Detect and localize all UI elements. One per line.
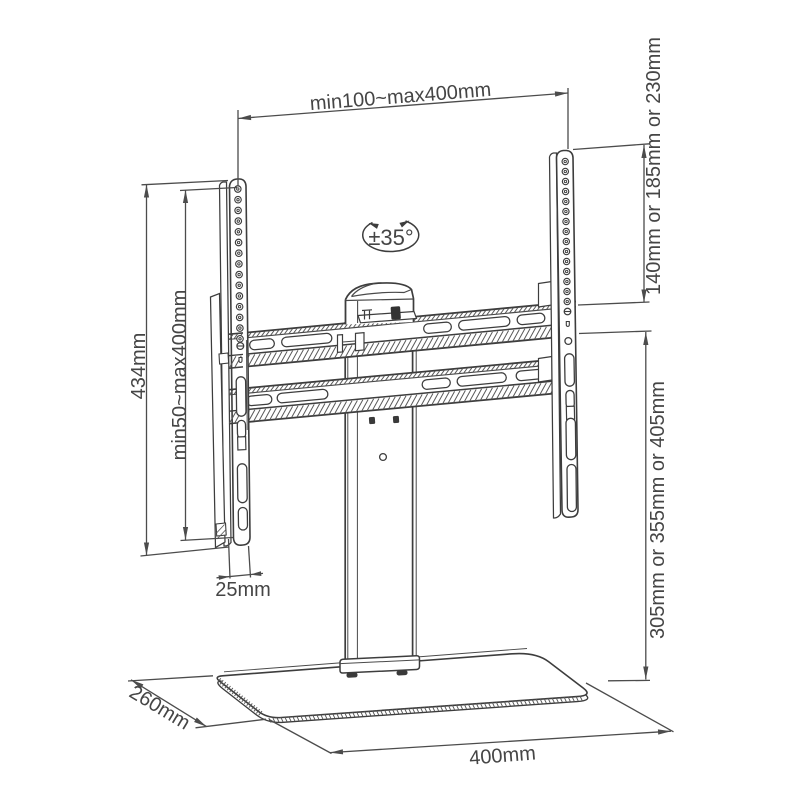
svg-text:25mm: 25mm xyxy=(215,579,271,601)
svg-text:140mm or 185mm or 230mm: 140mm or 185mm or 230mm xyxy=(643,37,665,295)
svg-text:±35°: ±35° xyxy=(368,225,413,250)
svg-text:min50~max400mm: min50~max400mm xyxy=(169,290,191,461)
svg-text:434mm: 434mm xyxy=(128,333,150,400)
svg-text:305mm or 355mm or 405mm: 305mm or 355mm or 405mm xyxy=(647,381,669,639)
